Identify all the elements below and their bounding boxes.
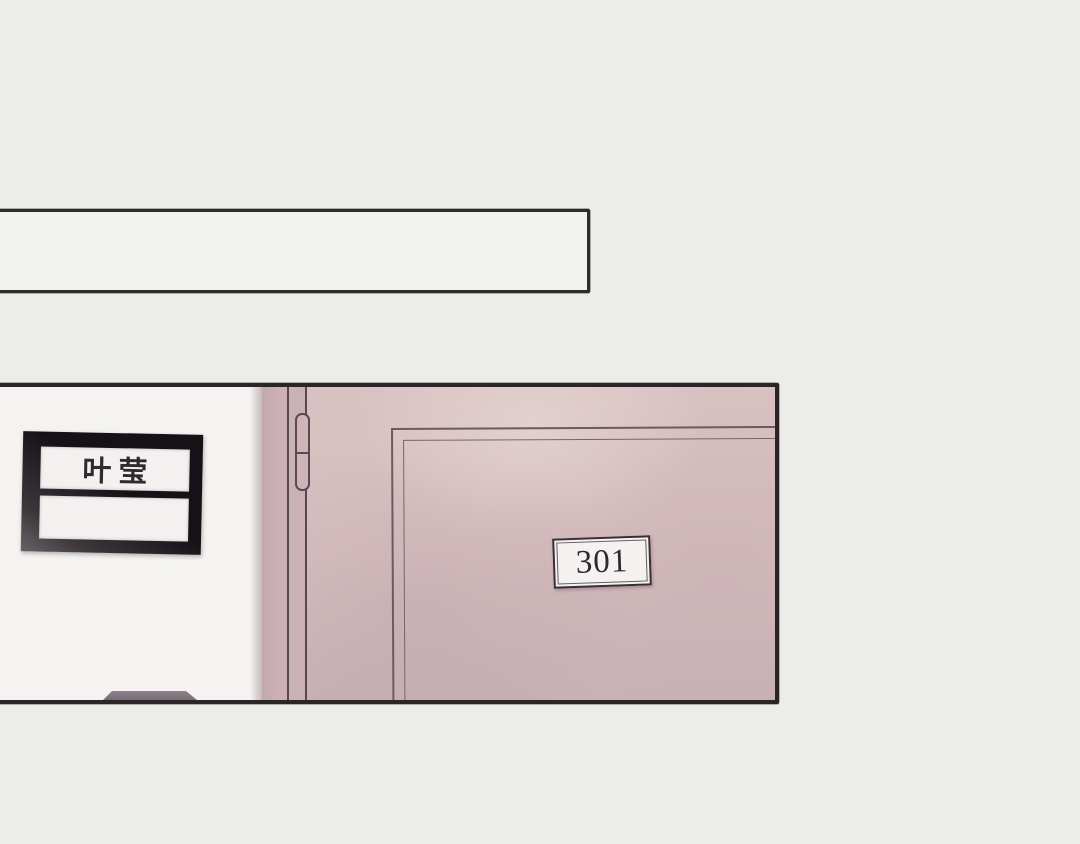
room-number-text: 301 [556, 539, 647, 584]
nameplate-empty-slot [39, 495, 189, 541]
wall-corner-shadow [250, 387, 262, 700]
nameplate-holder: 叶莹 [21, 431, 203, 555]
doormat [103, 691, 197, 700]
door-jamb-line [287, 387, 289, 700]
door: 301 [305, 387, 775, 700]
comic-page: 301 叶莹 [0, 0, 1080, 844]
room-number-sign: 301 [552, 535, 652, 588]
nameplate-name-slot: 叶莹 [40, 447, 190, 492]
comic-panel: 301 叶莹 [0, 383, 779, 704]
caption-bar [0, 209, 590, 293]
door-hinge-divider [297, 452, 308, 454]
door-hinge [295, 413, 310, 491]
